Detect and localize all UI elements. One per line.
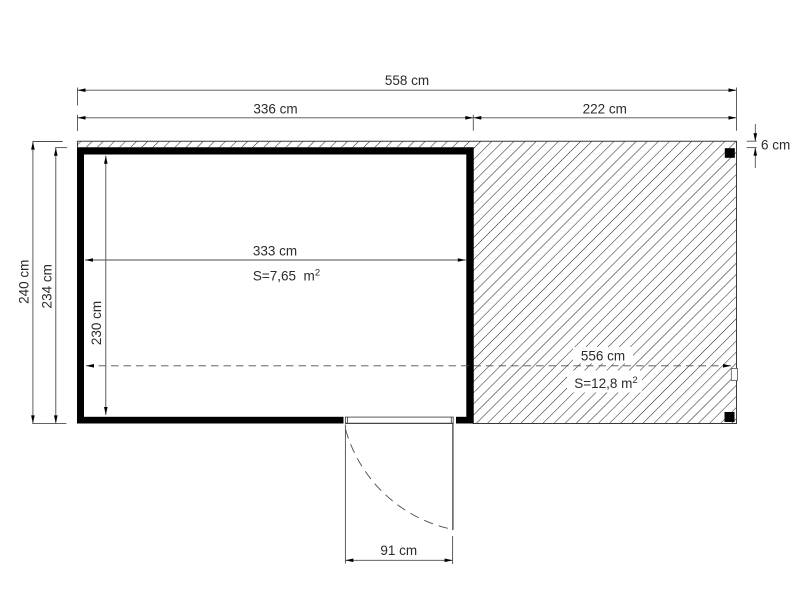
- svg-text:234 cm: 234 cm: [39, 264, 54, 308]
- svg-text:230 cm: 230 cm: [89, 301, 104, 345]
- svg-text:222 cm: 222 cm: [583, 102, 627, 117]
- svg-text:6 cm: 6 cm: [761, 138, 790, 153]
- svg-text:333 cm: 333 cm: [253, 244, 297, 259]
- svg-text:240 cm: 240 cm: [17, 260, 32, 304]
- svg-text:91 cm: 91 cm: [380, 543, 417, 558]
- svg-text:556 cm: 556 cm: [581, 349, 625, 364]
- svg-text:S=12,8 m2: S=12,8 m2: [574, 375, 637, 391]
- svg-text:S=7,65 m2: S=7,65 m2: [253, 268, 320, 284]
- svg-text:558 cm: 558 cm: [385, 73, 429, 88]
- svg-text:336 cm: 336 cm: [253, 102, 297, 117]
